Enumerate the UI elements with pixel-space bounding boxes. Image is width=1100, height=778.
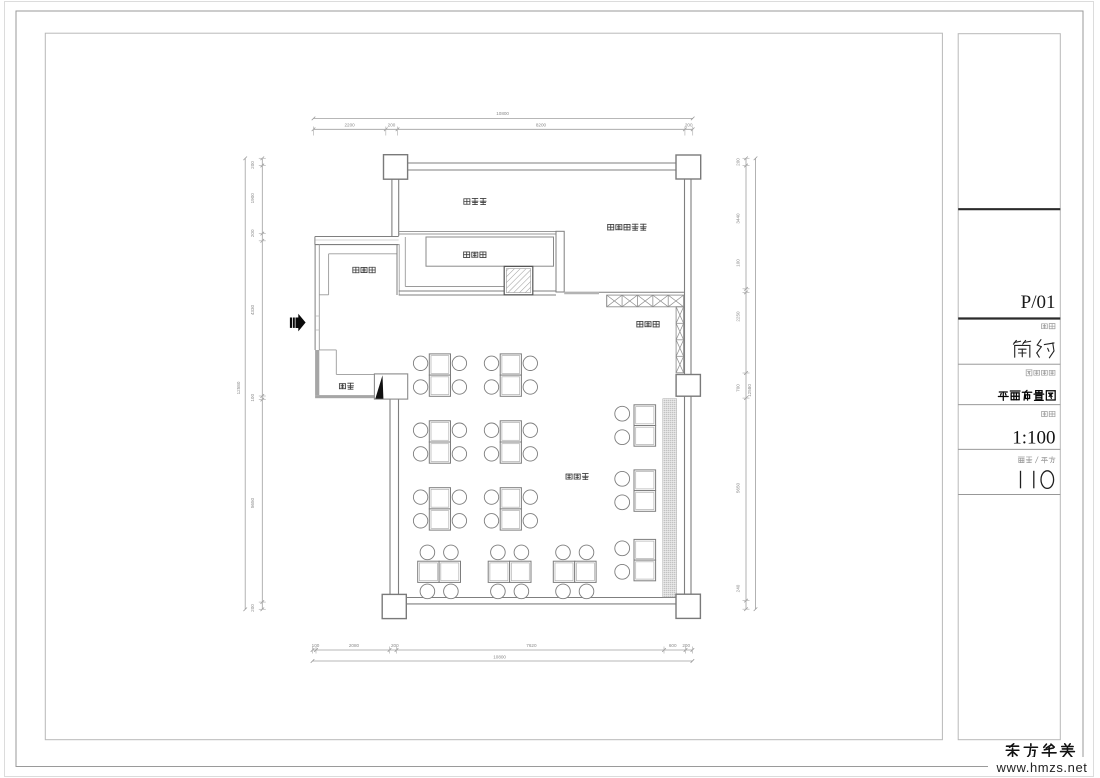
svg-text:2250: 2250 xyxy=(736,311,741,322)
svg-text:200: 200 xyxy=(736,158,741,166)
svg-text:100: 100 xyxy=(250,394,255,402)
svg-text:200: 200 xyxy=(250,229,255,237)
svg-text:600: 600 xyxy=(669,643,677,648)
svg-text:5650: 5650 xyxy=(736,482,741,493)
svg-text:1900: 1900 xyxy=(250,193,255,204)
svg-text:240: 240 xyxy=(736,584,741,592)
svg-text:12580: 12580 xyxy=(236,381,241,394)
svg-text:200: 200 xyxy=(388,122,396,127)
svg-text:10800: 10800 xyxy=(496,111,509,116)
svg-text:200: 200 xyxy=(685,122,693,127)
svg-text:7620: 7620 xyxy=(526,643,537,648)
svg-text:P/01: P/01 xyxy=(1021,292,1056,313)
svg-text:5650: 5650 xyxy=(250,497,255,508)
svg-text:200: 200 xyxy=(391,643,399,648)
svg-text:8200: 8200 xyxy=(536,122,547,127)
svg-text:3440: 3440 xyxy=(736,213,741,224)
svg-text:2080: 2080 xyxy=(349,643,360,648)
svg-text:200: 200 xyxy=(250,604,255,612)
svg-text:www.hmzs.net: www.hmzs.net xyxy=(996,760,1088,775)
svg-text:1:100: 1:100 xyxy=(1012,428,1055,449)
svg-text:10800: 10800 xyxy=(493,654,506,659)
svg-text:700: 700 xyxy=(736,384,741,392)
svg-text:4330: 4330 xyxy=(250,304,255,315)
svg-text:2200: 2200 xyxy=(344,122,355,127)
svg-text:200: 200 xyxy=(682,643,690,648)
svg-text:100: 100 xyxy=(736,259,741,267)
svg-text:100: 100 xyxy=(312,643,320,648)
svg-text:12580: 12580 xyxy=(747,384,752,397)
svg-text:200: 200 xyxy=(250,161,255,169)
